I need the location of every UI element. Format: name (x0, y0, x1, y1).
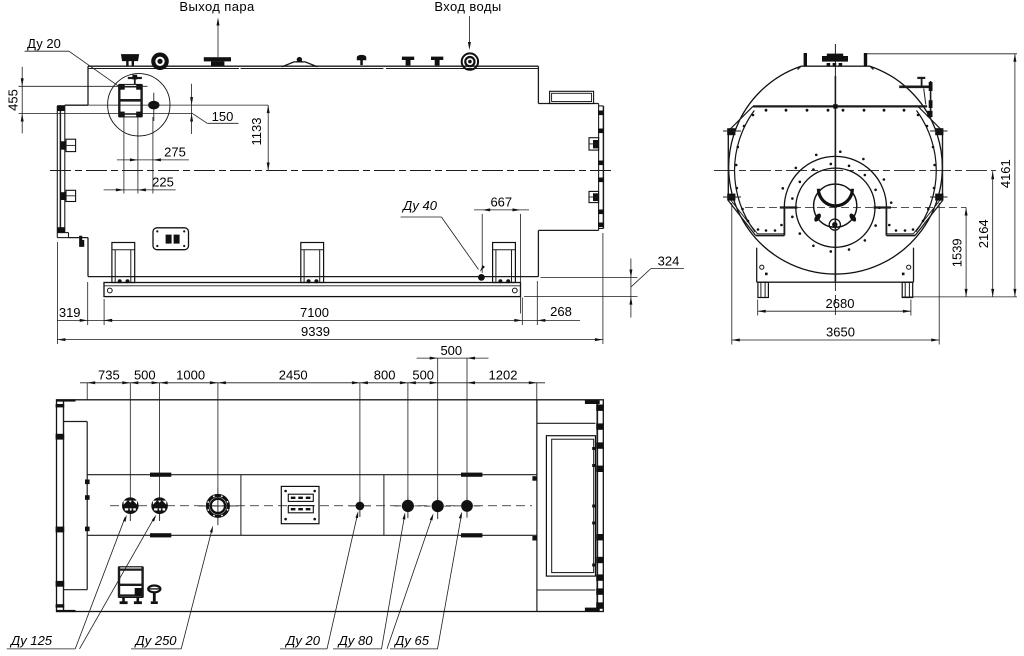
svg-text:Ду 20: Ду 20 (27, 36, 61, 51)
svg-text:Ду 80: Ду 80 (337, 633, 374, 648)
svg-text:1000: 1000 (176, 368, 205, 383)
svg-text:455: 455 (6, 89, 21, 111)
svg-text:2450: 2450 (279, 368, 308, 383)
svg-text:Ду 40: Ду 40 (401, 198, 438, 213)
svg-text:Ду 20: Ду 20 (284, 633, 321, 648)
svg-text:4161: 4161 (998, 159, 1013, 188)
svg-text:2680: 2680 (826, 296, 855, 311)
svg-text:319: 319 (59, 305, 81, 320)
svg-text:500: 500 (440, 343, 462, 358)
svg-text:Ду 125: Ду 125 (9, 633, 53, 648)
svg-text:150: 150 (212, 109, 234, 124)
svg-text:735: 735 (98, 368, 120, 383)
svg-text:225: 225 (152, 175, 174, 190)
svg-text:275: 275 (164, 145, 186, 160)
svg-text:1539: 1539 (949, 238, 964, 267)
svg-text:Ду 65: Ду 65 (393, 633, 430, 648)
svg-text:500: 500 (412, 368, 434, 383)
svg-text:7100: 7100 (300, 305, 329, 320)
svg-text:9339: 9339 (301, 324, 330, 339)
svg-text:500: 500 (134, 368, 156, 383)
svg-text:Выход пара: Выход пара (179, 0, 255, 14)
svg-text:1202: 1202 (489, 368, 518, 383)
svg-text:667: 667 (490, 194, 512, 209)
svg-text:1133: 1133 (249, 118, 264, 146)
svg-text:3650: 3650 (826, 325, 855, 340)
svg-text:Вход воды: Вход воды (434, 0, 501, 14)
svg-text:Ду 250: Ду 250 (133, 633, 177, 648)
svg-text:324: 324 (658, 254, 680, 269)
svg-text:268: 268 (550, 304, 572, 319)
svg-text:2164: 2164 (976, 219, 991, 248)
svg-text:800: 800 (374, 368, 396, 383)
